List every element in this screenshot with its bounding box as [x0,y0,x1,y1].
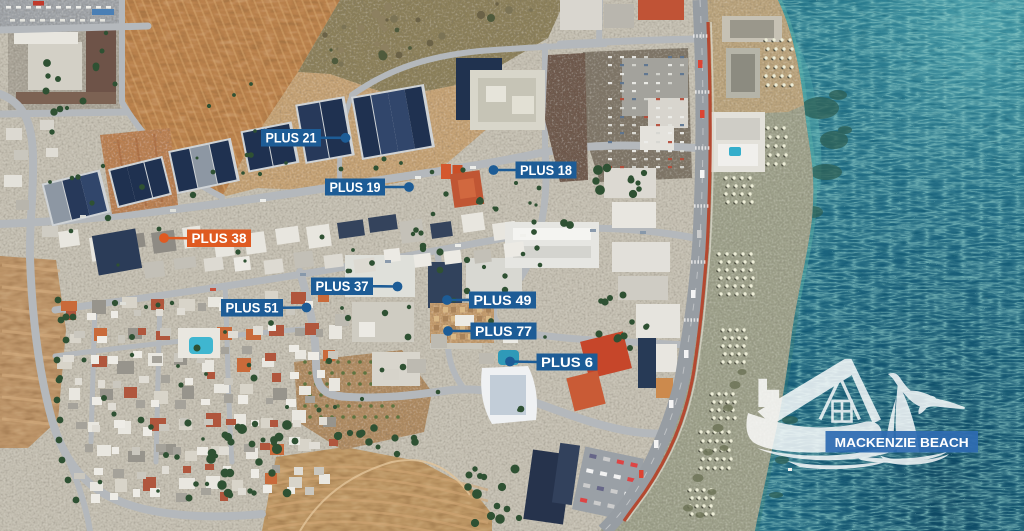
svg-text:MACKENZIE BEACH: MACKENZIE BEACH [835,435,969,450]
svg-text:PLUS 21: PLUS 21 [266,131,317,146]
svg-text:PLUS 51: PLUS 51 [226,301,279,316]
svg-text:PLUS 77: PLUS 77 [475,324,532,339]
svg-text:PLUS 19: PLUS 19 [330,180,381,195]
svg-text:PLUS 37: PLUS 37 [316,279,369,294]
svg-text:PLUS 38: PLUS 38 [192,231,247,246]
svg-text:PLUS 18: PLUS 18 [520,163,572,178]
svg-text:PLUS 6: PLUS 6 [541,355,594,370]
svg-text:PLUS 49: PLUS 49 [474,293,532,308]
